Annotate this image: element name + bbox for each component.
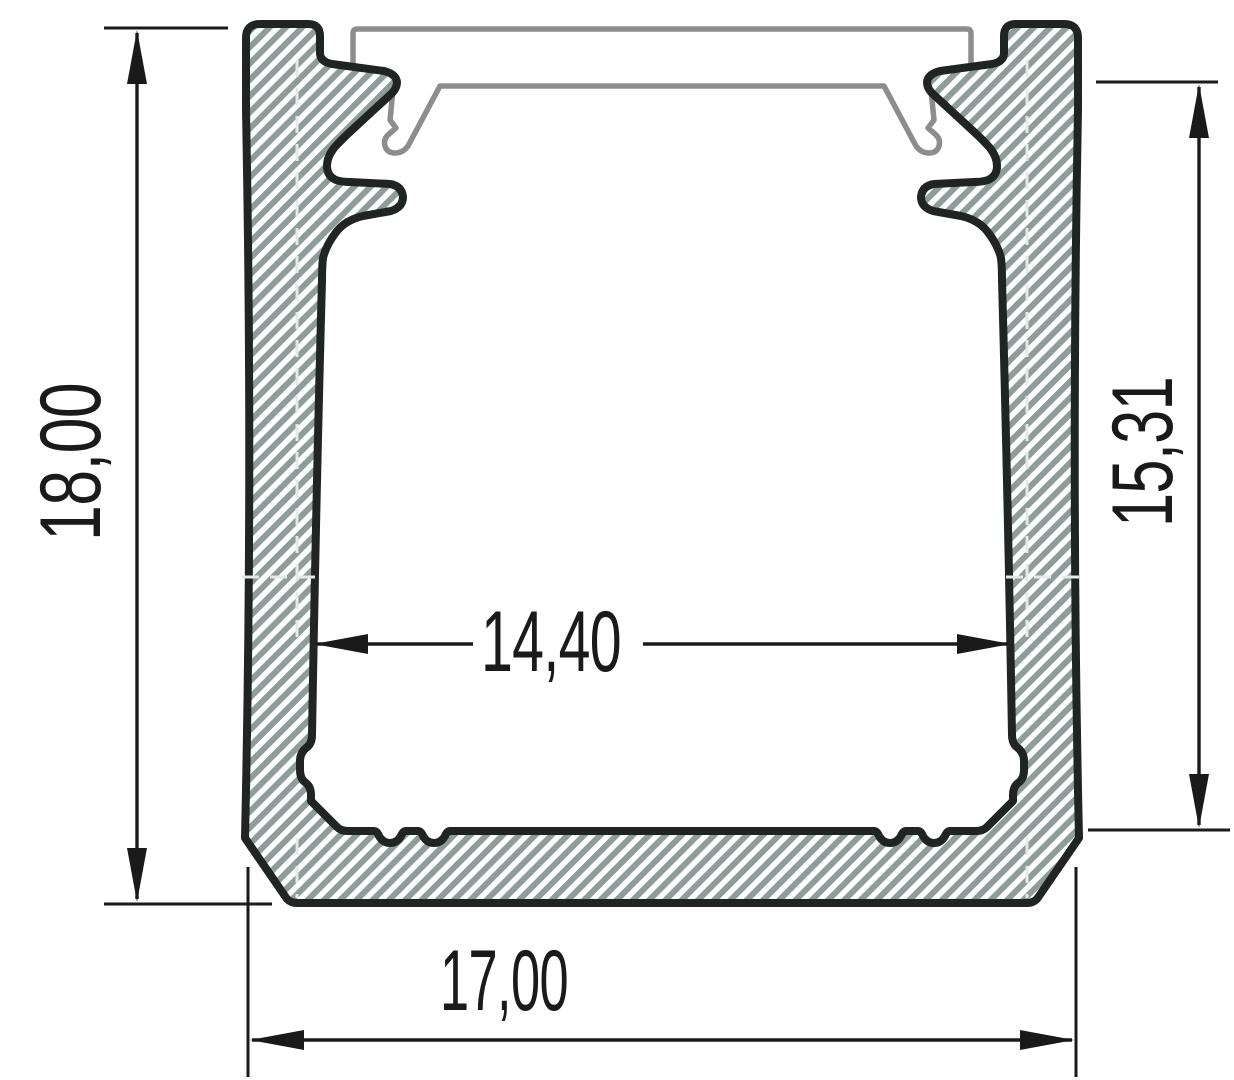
dimension-arrow-down-icon bbox=[127, 848, 147, 902]
dimension-label-overall-height: 18,00 bbox=[23, 383, 119, 541]
dimension-arrow-right-icon bbox=[1020, 1030, 1074, 1050]
dimension-arrow-right-icon bbox=[957, 634, 1011, 654]
dimension-arrow-up-icon bbox=[127, 30, 147, 84]
dimension-label-overall-width: 17,00 bbox=[440, 933, 568, 1029]
profile-cross-section-drawing: 18,00 15,31 14,40 17,00 bbox=[0, 0, 1234, 1080]
cover-cross-section bbox=[353, 29, 971, 153]
dimension-arrow-down-icon bbox=[1189, 774, 1209, 828]
dimension-arrow-up-icon bbox=[1189, 84, 1209, 138]
dimension-arrow-left-icon bbox=[250, 1030, 304, 1050]
dimension-arrow-left-icon bbox=[314, 634, 368, 654]
dimension-label-inner-height: 15,31 bbox=[1095, 377, 1191, 527]
dimension-overall-height: 18,00 bbox=[23, 28, 272, 904]
profile-cross-section bbox=[245, 24, 1079, 903]
dimension-label-inner-width: 14,40 bbox=[481, 594, 621, 690]
dimension-inner-height: 15,31 bbox=[1088, 82, 1230, 830]
technical-drawing: 18,00 15,31 14,40 17,00 bbox=[0, 0, 1234, 1080]
dimension-inner-width: 14,40 bbox=[314, 594, 1011, 690]
